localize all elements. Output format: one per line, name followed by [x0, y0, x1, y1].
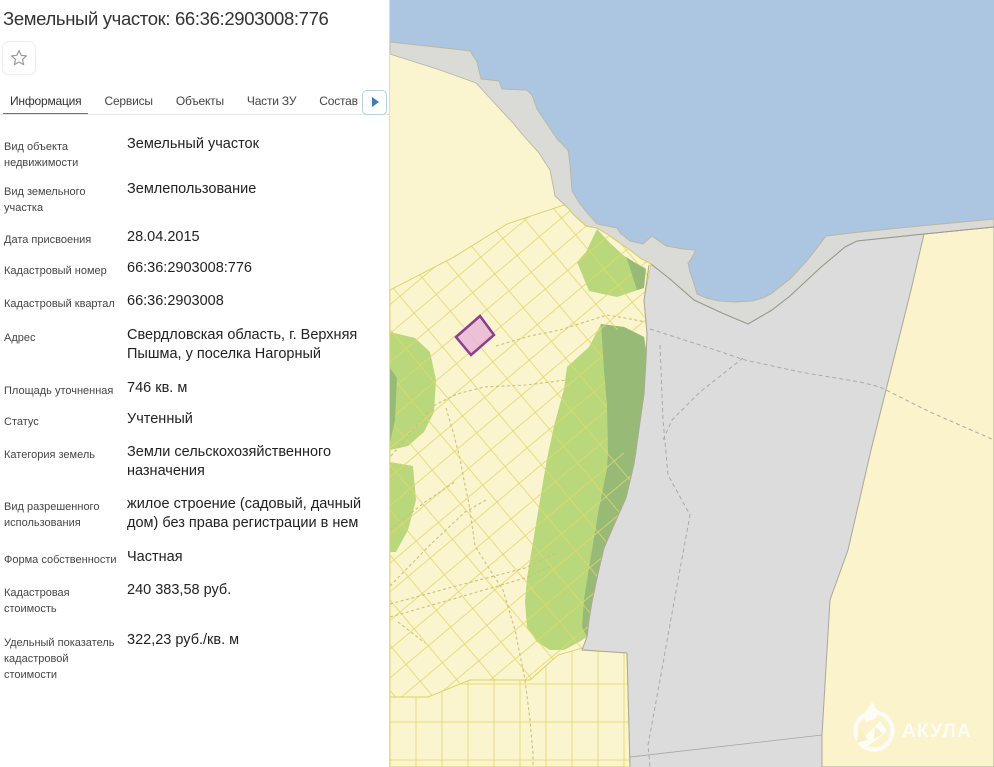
svg-text:АКУЛА: АКУЛА: [902, 721, 972, 742]
